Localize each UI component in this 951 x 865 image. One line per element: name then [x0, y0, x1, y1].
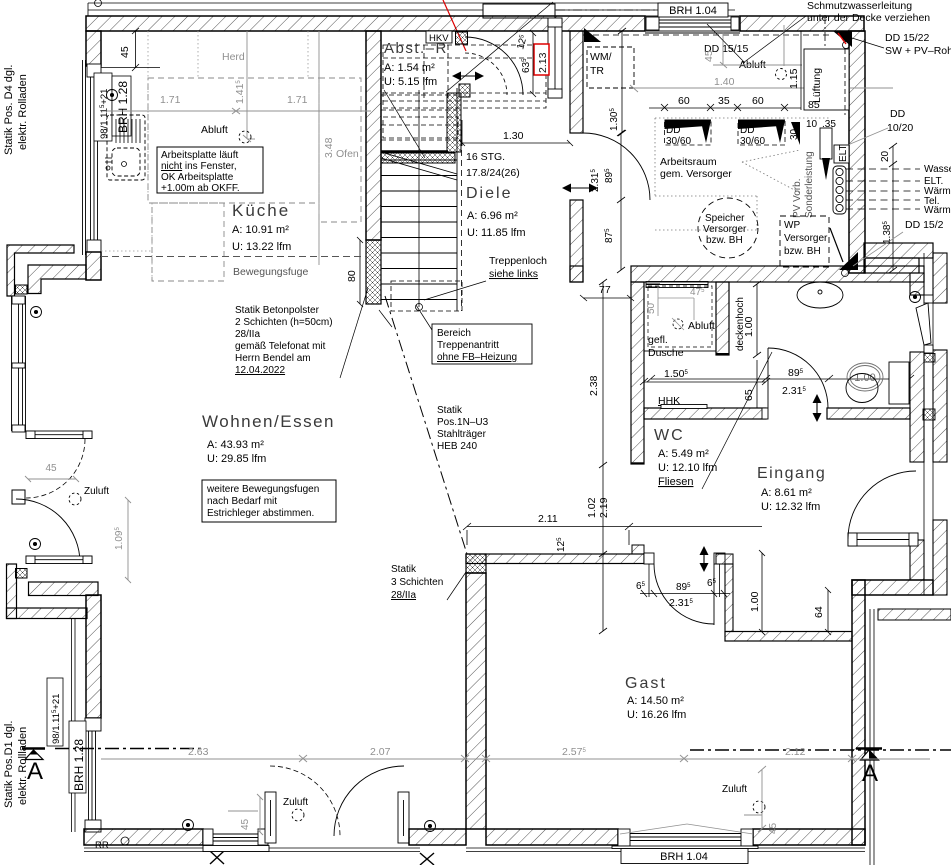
svg-text:Arbeitsplatte läuft: Arbeitsplatte läuft [161, 150, 238, 161]
svg-text:Wasser: Wasser [924, 164, 951, 175]
svg-text:635: 635 [521, 58, 532, 73]
svg-text:2.315: 2.315 [782, 385, 806, 397]
svg-text:Stahlträger: Stahlträger [437, 429, 487, 440]
svg-text:895: 895 [676, 582, 691, 593]
svg-text:45: 45 [45, 463, 57, 474]
svg-text:45: 45 [703, 50, 715, 62]
svg-text:A: 10.91 m²: A: 10.91 m² [232, 224, 289, 236]
svg-text:10: 10 [806, 119, 818, 130]
svg-text:3 Schichten: 3 Schichten [391, 577, 443, 588]
svg-text:Herd: Herd [222, 51, 245, 63]
svg-text:1.505: 1.505 [664, 368, 688, 380]
svg-text:Abluft: Abluft [201, 124, 228, 136]
svg-text:1.71: 1.71 [160, 94, 181, 106]
svg-text:2.38: 2.38 [588, 375, 600, 396]
svg-text:2.13: 2.13 [537, 52, 549, 73]
svg-text:ohne FB–Heizung: ohne FB–Heizung [437, 352, 517, 363]
svg-text:895: 895 [788, 367, 804, 379]
svg-text:35: 35 [718, 95, 730, 107]
svg-text:Fliesen: Fliesen [658, 476, 693, 488]
svg-text:A: 1.54 m²: A: 1.54 m² [384, 62, 435, 74]
svg-text:45: 45 [768, 822, 779, 834]
svg-text:Lüftung: Lüftung [811, 68, 823, 103]
svg-text:2 Schichten (h=50cm): 2 Schichten (h=50cm) [235, 317, 333, 328]
svg-text:gem. Versorger: gem. Versorger [660, 168, 732, 180]
svg-text:A: 14.50 m²: A: 14.50 m² [627, 695, 684, 707]
svg-text:DD: DD [740, 125, 754, 136]
svg-text:elektr. Rolladen: elektr. Rolladen [17, 74, 29, 150]
svg-text:895: 895 [604, 168, 615, 183]
svg-text:weitere Bewegungsfugen: weitere Bewegungsfugen [206, 484, 319, 495]
svg-text:65: 65 [707, 578, 717, 589]
svg-text:1.40: 1.40 [714, 76, 735, 88]
svg-text:Ofen: Ofen [336, 148, 359, 160]
svg-text:Speicher: Speicher [705, 213, 745, 224]
svg-text:U: 29.85 lfm: U: 29.85 lfm [207, 453, 266, 465]
svg-text:45: 45 [240, 818, 251, 830]
svg-text:2.575: 2.575 [562, 746, 586, 758]
svg-text:OK Arbeitsplatte: OK Arbeitsplatte [161, 172, 234, 183]
svg-text:1.00: 1.00 [743, 316, 755, 337]
svg-text:2.63: 2.63 [188, 746, 209, 758]
svg-text:DD 15/22: DD 15/22 [885, 32, 930, 44]
svg-text:85: 85 [808, 99, 820, 111]
svg-text:Wohnen/Essen: Wohnen/Essen [202, 412, 335, 431]
svg-text:125: 125 [515, 33, 530, 50]
svg-text:Zuluft: Zuluft [722, 784, 747, 795]
svg-text:45: 45 [119, 46, 131, 58]
svg-text:28/IIa: 28/IIa [391, 590, 416, 601]
svg-text:1.305: 1.305 [609, 108, 620, 131]
svg-text:U: 12.10 lfm: U: 12.10 lfm [658, 462, 717, 474]
svg-text:65: 65 [636, 581, 646, 592]
svg-text:64: 64 [813, 606, 825, 618]
svg-text:1.30: 1.30 [503, 130, 524, 142]
svg-text:BRH 1.28: BRH 1.28 [72, 739, 86, 791]
svg-text:Eingang: Eingang [757, 465, 826, 482]
svg-text:Herrn Bendel am: Herrn Bendel am [235, 353, 311, 364]
svg-text:DD: DD [890, 108, 906, 120]
svg-text:1.095: 1.095 [114, 527, 125, 550]
svg-text:HEB 240: HEB 240 [437, 441, 477, 452]
svg-text:Abst.–R: Abst.–R [384, 40, 448, 57]
svg-text:Abluft: Abluft [688, 320, 715, 332]
svg-text:98/1.115+21: 98/1.115+21 [99, 89, 110, 139]
svg-text:12.04.2022: 12.04.2022 [235, 365, 285, 376]
svg-text:1.02: 1.02 [586, 497, 598, 518]
svg-text:Bewegungsfuge: Bewegungsfuge [233, 266, 308, 278]
svg-text:DD: DD [666, 125, 680, 136]
svg-text:TR: TR [590, 65, 604, 77]
svg-text:A: A [862, 760, 878, 787]
svg-text:Statik Betonpolster: Statik Betonpolster [235, 305, 320, 316]
svg-text:1.415: 1.415 [234, 80, 246, 104]
svg-text:Statik: Statik [391, 564, 417, 575]
svg-text:elektr. Rollladen: elektr. Rollladen [17, 727, 29, 805]
svg-text:A: 8.61 m²: A: 8.61 m² [761, 487, 812, 499]
svg-text:Gast: Gast [625, 675, 667, 692]
svg-text:bzw. BH: bzw. BH [784, 246, 821, 257]
svg-text:30/60: 30/60 [666, 136, 691, 147]
svg-text:28/IIa: 28/IIa [235, 329, 260, 340]
svg-text:2.315: 2.315 [669, 597, 693, 609]
svg-text:U: 11.85 lfm: U: 11.85 lfm [467, 227, 526, 239]
svg-text:Statik Pos.D1 dgl.: Statik Pos.D1 dgl. [3, 721, 15, 808]
svg-text:Zuluft: Zuluft [84, 486, 109, 497]
svg-text:Dusche: Dusche [648, 347, 684, 359]
svg-text:Treppenantritt: Treppenantritt [437, 340, 499, 351]
svg-text:U: 16.26 lfm: U: 16.26 lfm [627, 709, 686, 721]
svg-text:DD 15/2: DD 15/2 [905, 219, 944, 231]
svg-text:A: 5.49 m²: A: 5.49 m² [658, 448, 709, 460]
svg-text:30/60: 30/60 [740, 136, 765, 147]
svg-text:WC: WC [654, 427, 685, 444]
svg-text:17.8/24(26): 17.8/24(26) [466, 167, 520, 179]
svg-text:BRH 1.04: BRH 1.04 [669, 5, 717, 17]
svg-text:20: 20 [880, 150, 891, 162]
svg-text:Pos.1N–U3: Pos.1N–U3 [437, 417, 489, 428]
svg-text:2.19: 2.19 [598, 497, 610, 518]
svg-text:unter der Decke verziehen: unter der Decke verziehen [807, 12, 930, 24]
svg-text:siehe links: siehe links [489, 268, 538, 280]
svg-text:2.315: 2.315 [590, 169, 601, 192]
svg-text:A: 43.93 m²: A: 43.93 m² [207, 439, 264, 451]
svg-text:Statik: Statik [437, 405, 463, 416]
svg-text:bzw. BH: bzw. BH [706, 235, 743, 246]
svg-text:gefl.: gefl. [648, 334, 668, 346]
svg-text:+1.00m ab OKFF.: +1.00m ab OKFF. [161, 183, 240, 194]
svg-text:3.48: 3.48 [323, 137, 335, 158]
svg-text:1.15: 1.15 [788, 68, 800, 89]
svg-text:60: 60 [678, 95, 690, 107]
svg-text:gemäß Telefonat mit: gemäß Telefonat mit [235, 341, 326, 352]
svg-text:Versorger: Versorger [703, 224, 747, 235]
svg-text:Sonderleistung: Sonderleistung [804, 151, 815, 218]
svg-text:Wärme: Wärme [924, 205, 951, 216]
svg-text:U: 13.22 lfm: U: 13.22 lfm [232, 241, 291, 253]
svg-text:2.11: 2.11 [538, 513, 558, 525]
svg-text:98/1.115+21: 98/1.115+21 [51, 694, 62, 744]
svg-text:SW + PV–Rohr: SW + PV–Rohr [885, 45, 951, 57]
svg-text:Schmutzwasserleitung: Schmutzwasserleitung [807, 0, 912, 12]
svg-text:Küche: Küche [232, 201, 290, 220]
svg-text:A: 6.96 m²: A: 6.96 m² [467, 210, 518, 222]
svg-text:60: 60 [752, 95, 764, 107]
svg-text:U: 5.15 lfm: U: 5.15 lfm [384, 76, 437, 88]
svg-text:10/20: 10/20 [887, 122, 913, 134]
svg-text:80: 80 [346, 270, 358, 282]
svg-text:2.12: 2.12 [785, 746, 806, 758]
svg-text:WM/: WM/ [590, 51, 612, 63]
svg-text:475: 475 [690, 287, 705, 298]
svg-text:Estrichleger abstimmen.: Estrichleger abstimmen. [207, 508, 314, 519]
svg-text:Versorger: Versorger [784, 233, 828, 244]
svg-text:A: A [27, 758, 43, 785]
svg-text:Statik Pos. D4 dgl.: Statik Pos. D4 dgl. [3, 65, 15, 156]
svg-text:Treppenloch: Treppenloch [489, 255, 547, 267]
svg-text:BRH 1.04: BRH 1.04 [660, 851, 708, 863]
svg-text:1.71: 1.71 [287, 94, 308, 106]
svg-text:ELT: ELT [838, 144, 849, 162]
svg-text:125: 125 [556, 537, 567, 552]
svg-text:U: 12.32 lfm: U: 12.32 lfm [761, 501, 820, 513]
svg-text:Arbeitsraum: Arbeitsraum [660, 156, 717, 168]
svg-text:1.00: 1.00 [749, 591, 761, 612]
svg-text:nach Bedarf mit: nach Bedarf mit [207, 496, 277, 507]
svg-text:1.385: 1.385 [882, 221, 893, 244]
svg-text:WP: WP [784, 220, 800, 231]
svg-text:Bereich: Bereich [437, 328, 471, 339]
svg-text:Zuluft: Zuluft [283, 797, 308, 808]
svg-text:2.07: 2.07 [370, 746, 391, 758]
svg-text:16 STG.: 16 STG. [466, 151, 505, 163]
svg-text:nicht ins Fenster,: nicht ins Fenster, [161, 161, 237, 172]
svg-text:65: 65 [743, 389, 755, 401]
svg-text:875: 875 [604, 228, 615, 243]
svg-text:PV Vorb.: PV Vorb. [792, 179, 803, 218]
svg-text:50: 50 [646, 302, 657, 314]
svg-text:Diele: Diele [466, 185, 512, 202]
svg-text:77: 77 [599, 284, 611, 296]
